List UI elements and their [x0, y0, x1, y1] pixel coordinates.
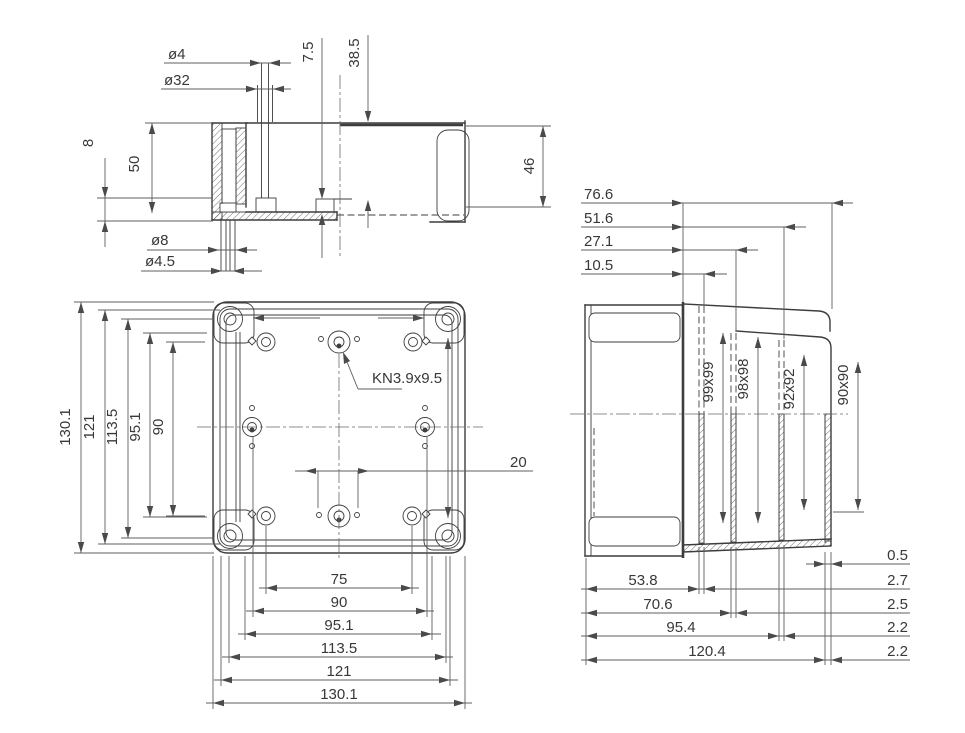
- dim-top-76-6: 76.6: [584, 186, 613, 203]
- dim-bot-120-4: 120.4: [688, 643, 726, 660]
- dim-face-92x92: 92x92: [781, 369, 798, 410]
- dim-dia32-label: ø32: [164, 72, 190, 89]
- dim-top-51-6: 51.6: [584, 210, 613, 227]
- dim-left-121: 121: [81, 414, 98, 439]
- dim-50-label: 50: [126, 156, 143, 173]
- dim-top-10-5: 10.5: [584, 257, 613, 274]
- dim-dia4-5-label: ø4.5: [145, 253, 175, 270]
- plan-view: KN3.9x9.520130.1121113.595.190759095.111…: [57, 302, 533, 709]
- side-view: 99x9998x9892x9290x9076.651.627.110.553.8…: [570, 186, 910, 665]
- dim-top-27-1: 27.1: [584, 233, 613, 250]
- dim-bot-121: 121: [326, 663, 351, 680]
- dim-7-5-label: 7.5: [300, 42, 317, 63]
- section-view: ø4ø327.538.585046ø8ø4.5: [80, 35, 551, 274]
- dim-bot-53-8: 53.8: [628, 572, 657, 589]
- dim-right-0-5: 0.5: [887, 547, 908, 564]
- dim-left-95-1: 95.1: [127, 412, 144, 441]
- technical-drawing: ø4ø327.538.585046ø8ø4.5 KN3.9x9.520130.1…: [0, 0, 965, 733]
- dim-dia8-label: ø8: [151, 232, 169, 249]
- dim-8-label: 8: [80, 139, 97, 147]
- dim-bot-90: 90: [331, 594, 348, 611]
- dim-left-130-1: 130.1: [57, 408, 74, 446]
- dim-bot-95-4: 95.4: [666, 619, 695, 636]
- dim-38-5-label: 38.5: [346, 38, 363, 67]
- note-kn3-9x9-5: KN3.9x9.5: [372, 370, 442, 387]
- dim-left-90: 90: [150, 419, 167, 436]
- dim-face-99x99: 99x99: [700, 362, 717, 403]
- dim-left-113-5: 113.5: [104, 409, 121, 445]
- dim-dia4-label: ø4: [168, 46, 186, 63]
- dim-right-2-5: 2.5: [887, 596, 908, 613]
- dim-bot-70-6: 70.6: [643, 596, 672, 613]
- dim-bot-130-1: 130.1: [320, 686, 358, 703]
- dim-bot-113-5: 113.5: [321, 640, 357, 657]
- dim-right-2-2b: 2.2: [887, 643, 908, 660]
- dim-right-2-2a: 2.2: [887, 619, 908, 636]
- dim-bot-95-1: 95.1: [324, 617, 353, 634]
- dim-right-2-7: 2.7: [887, 572, 908, 589]
- dim-bot-75: 75: [331, 571, 348, 588]
- dim-20-label: 20: [510, 454, 527, 471]
- drawing-canvas: ø4ø327.538.585046ø8ø4.5 KN3.9x9.520130.1…: [0, 0, 965, 733]
- dim-46-label: 46: [521, 158, 538, 175]
- dim-face-90x90: 90x90: [835, 365, 852, 406]
- dim-face-98x98: 98x98: [735, 359, 752, 400]
